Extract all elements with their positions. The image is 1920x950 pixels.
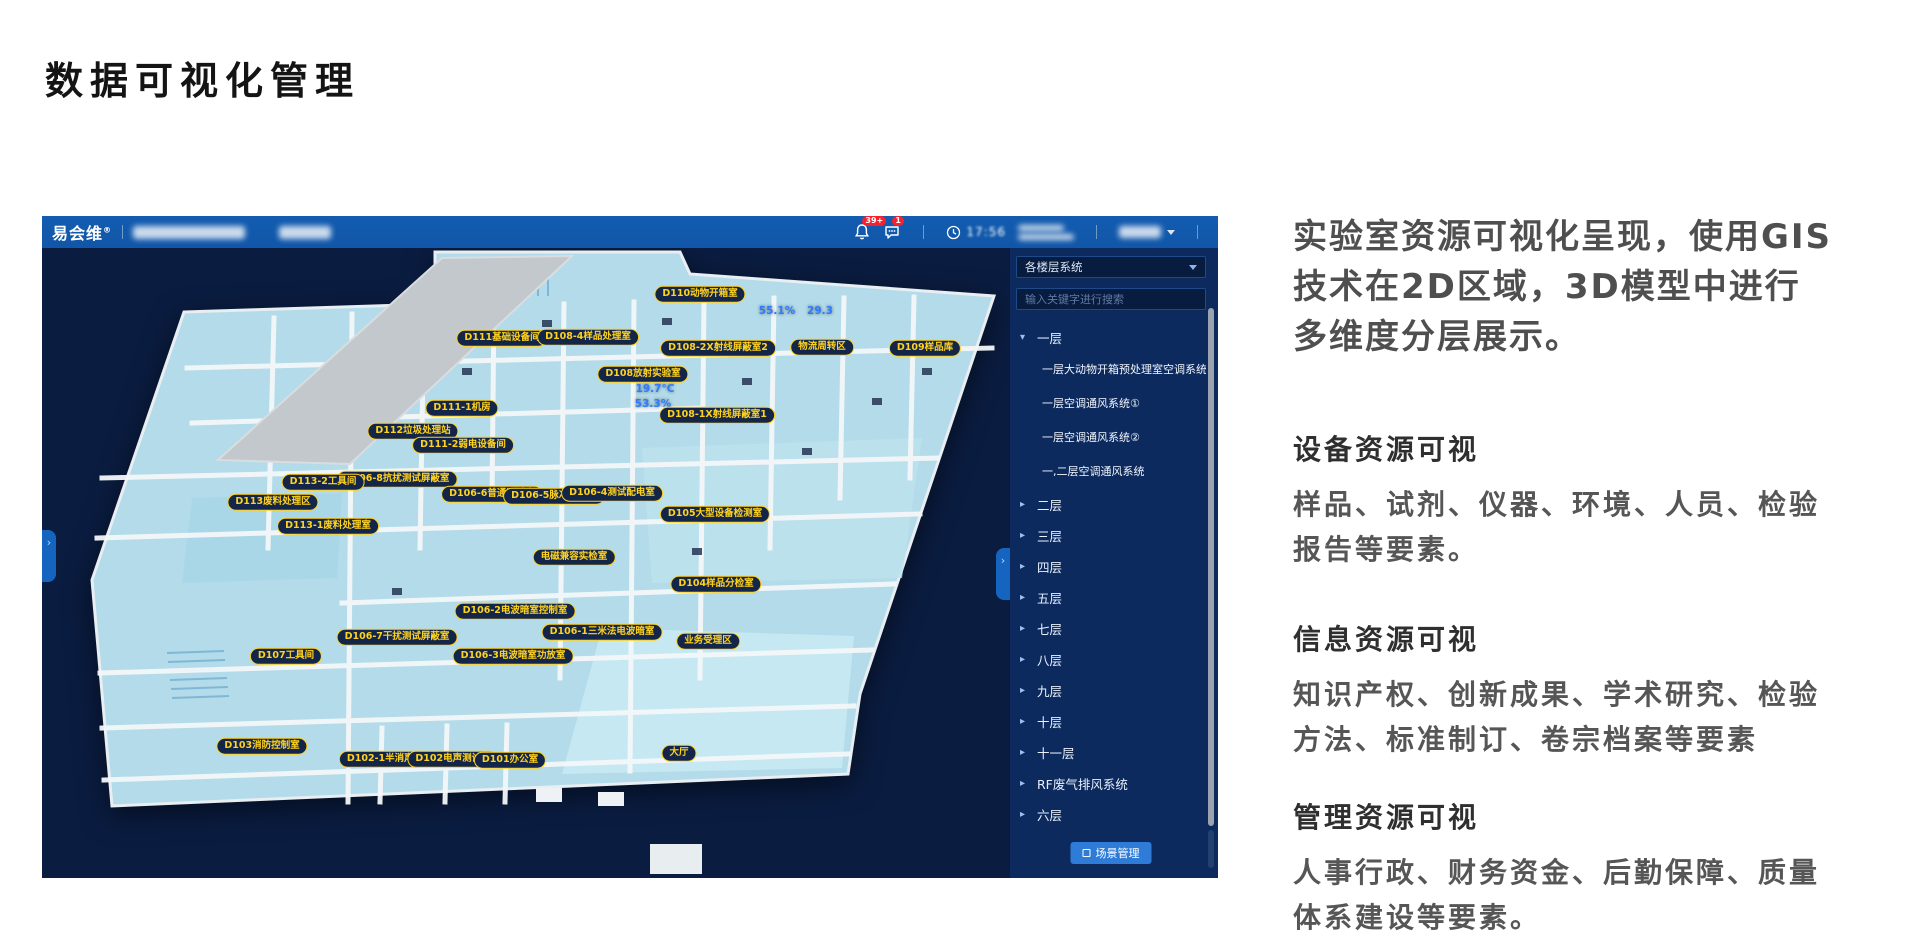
room-label[interactable]: D106-3电波暗室功放室 [453, 648, 574, 665]
tree-item-二层[interactable]: ▸二层 [1016, 489, 1206, 520]
system-type-dropdown[interactable]: 各楼层系统 [1016, 256, 1206, 278]
room-label[interactable]: D101办公室 [474, 752, 546, 769]
section-title: 信息资源可视 [1293, 618, 1845, 658]
current-time: 17:56 [966, 225, 1006, 239]
intro-paragraph: 实验室资源可视化呈现，使用GIS技术在2D区域，3D模型中进行多维度分层展示。 [1293, 212, 1833, 362]
sidebar-scrollbar[interactable] [1208, 308, 1214, 826]
room-label[interactable]: D113废料处理区 [227, 494, 318, 511]
caret-collapsed-icon[interactable]: ▸ [1020, 747, 1030, 758]
dropdown-value: 各楼层系统 [1025, 259, 1083, 275]
tree-item-七层[interactable]: ▸七层 [1016, 613, 1206, 644]
scene-icon [1083, 849, 1091, 857]
room-label[interactable]: D113-1废料处理室 [277, 518, 379, 535]
left-panel-expand-tab[interactable]: › [42, 530, 56, 582]
room-label[interactable]: D106-2电波暗室控制室 [455, 603, 576, 620]
caret-collapsed-icon[interactable]: ▸ [1020, 778, 1030, 789]
keyword-search-input[interactable] [1016, 288, 1206, 310]
room-label[interactable]: D109样品库 [889, 340, 961, 357]
tree-item-三层[interactable]: ▸三层 [1016, 520, 1206, 551]
caret-collapsed-icon[interactable]: ▸ [1020, 654, 1030, 665]
room-label[interactable]: D111-2弱电设备间 [412, 437, 514, 454]
room-label[interactable]: 大厅 [661, 745, 696, 762]
tree-item-RF废气排风系统[interactable]: ▸RF废气排风系统 [1016, 768, 1206, 799]
scene-management-button[interactable]: 场景管理 [1071, 842, 1152, 864]
room-label[interactable]: 电磁兼容实检室 [533, 549, 616, 566]
chevron-down-icon [1167, 230, 1175, 235]
room-label[interactable]: D111-1机房 [425, 400, 498, 417]
caret-collapsed-icon[interactable]: ▸ [1020, 809, 1030, 820]
messages-button[interactable]: 1 [883, 223, 901, 241]
floorplan-viewport[interactable]: D110动物开箱室D111基础设备间D108-4样品处理室D108-2X射线屏蔽… [42, 248, 1010, 878]
notification-bell-button[interactable]: 39+ [853, 223, 871, 241]
floor-tree: ▾一层一层大动物开箱预处理室空调系统一层空调通风系统①一层空调通风系统②一,二层… [1016, 322, 1206, 830]
divider [1096, 225, 1097, 239]
room-label[interactable]: D108-1X射线屏蔽室1 [659, 407, 775, 424]
divider [122, 225, 123, 239]
chevron-down-icon [1189, 265, 1197, 270]
room-label[interactable]: D106-1三米法电波暗室 [542, 624, 663, 641]
tree-item-五层[interactable]: ▸五层 [1016, 582, 1206, 613]
sensor-reading: 55.1% [759, 305, 795, 317]
blurred-menu-item[interactable] [279, 226, 331, 239]
room-label[interactable]: D106-7干扰测试屏蔽室 [337, 629, 458, 646]
sensor-reading: 19.7°C [636, 383, 675, 395]
room-label[interactable]: D105大型设备检测室 [660, 506, 770, 523]
tree-item-十一层[interactable]: ▸十一层 [1016, 737, 1206, 768]
room-label[interactable]: D108-2X射线屏蔽室2 [660, 340, 776, 357]
blurred-date-text [1018, 225, 1074, 240]
app-topbar: 易会维® 39+ 1 [42, 216, 1218, 248]
section-body: 人事行政、财务资金、后勤保障、质量体系建设等要素。 [1293, 850, 1845, 940]
clock-widget: 17:56 [946, 225, 1006, 240]
clock-icon [946, 225, 961, 240]
blurred-user-name [1119, 226, 1161, 238]
tree-item-十层[interactable]: ▸十层 [1016, 706, 1206, 737]
room-label[interactable]: D106-4测试配电室 [561, 485, 663, 502]
room-label[interactable]: D108-4样品处理室 [537, 329, 639, 346]
resource-section: 信息资源可视知识产权、创新成果、学术研究、检验方法、标准制订、卷宗档案等要素 [1293, 618, 1845, 762]
room-label[interactable]: D111基础设备间 [456, 330, 547, 347]
sidebar-collapse-tab[interactable]: › [996, 548, 1010, 600]
room-label[interactable]: 业务受理区 [676, 633, 740, 650]
chat-badge: 1 [892, 216, 904, 226]
room-label[interactable]: D104样品分检室 [670, 576, 761, 593]
caret-collapsed-icon[interactable]: ▸ [1020, 685, 1030, 696]
divider [923, 225, 924, 239]
section-title: 管理资源可视 [1293, 796, 1845, 836]
resource-section: 管理资源可视人事行政、财务资金、后勤保障、质量体系建设等要素。 [1293, 796, 1845, 940]
caret-collapsed-icon[interactable]: ▸ [1020, 716, 1030, 727]
user-menu[interactable] [1119, 226, 1175, 238]
section-body: 知识产权、创新成果、学术研究、检验方法、标准制订、卷宗档案等要素 [1293, 672, 1845, 762]
tree-item-六层[interactable]: ▸六层 [1016, 799, 1206, 830]
room-label[interactable]: D110动物开箱室 [654, 286, 745, 303]
tree-child-item[interactable]: 一层大动物开箱预处理室空调系统 [1016, 353, 1206, 387]
section-title: 设备资源可视 [1293, 428, 1845, 468]
tree-item-八层[interactable]: ▸八层 [1016, 644, 1206, 675]
caret-collapsed-icon[interactable]: ▸ [1020, 592, 1030, 603]
divider [1197, 225, 1198, 239]
room-label[interactable]: D108放射实验室 [597, 366, 688, 383]
caret-collapsed-icon[interactable]: ▸ [1020, 530, 1030, 541]
caret-expanded-icon[interactable]: ▾ [1020, 332, 1030, 343]
app-window: 易会维® 39+ 1 [42, 216, 1218, 878]
tree-item-九层[interactable]: ▸九层 [1016, 675, 1206, 706]
room-label[interactable]: D107工具间 [250, 648, 322, 665]
sensor-reading: 29.3 [807, 305, 833, 317]
app-logo: 易会维® [52, 220, 112, 244]
caret-collapsed-icon[interactable]: ▸ [1020, 623, 1030, 634]
tree-item-一层[interactable]: ▾一层 [1016, 322, 1206, 353]
page-title: 数据可视化管理 [45, 50, 360, 105]
room-label[interactable]: D103消防控制室 [216, 738, 307, 755]
tree-child-item[interactable]: 一层空调通风系统② [1016, 421, 1206, 455]
room-label[interactable]: D113-2工具间 [282, 474, 365, 491]
tree-child-item[interactable]: 一层空调通风系统① [1016, 387, 1206, 421]
section-body: 样品、试剂、仪器、环境、人员、检验报告等要素。 [1293, 482, 1845, 572]
sidebar-scrollbar-track [1208, 830, 1214, 868]
caret-collapsed-icon[interactable]: ▸ [1020, 499, 1030, 510]
floor-systems-panel: › 各楼层系统 ▾一层一层大动物开箱预处理室空调系统一层空调通风系统①一层空调通… [1010, 248, 1218, 878]
caret-collapsed-icon[interactable]: ▸ [1020, 561, 1030, 572]
room-label[interactable]: 物流周转区 [790, 339, 854, 356]
resource-section: 设备资源可视样品、试剂、仪器、环境、人员、检验报告等要素。 [1293, 428, 1845, 572]
tree-item-四层[interactable]: ▸四层 [1016, 551, 1206, 582]
tree-child-item[interactable]: 一,二层空调通风系统 [1016, 455, 1206, 489]
blurred-menu-item[interactable] [133, 226, 245, 239]
